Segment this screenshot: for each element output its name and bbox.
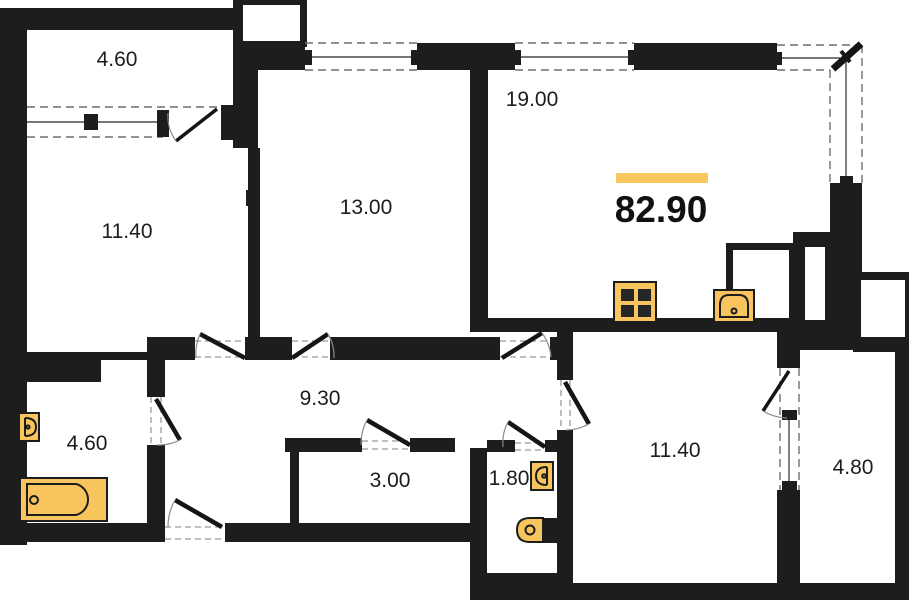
door-bathroom [151, 397, 180, 445]
fixtures [19, 282, 754, 542]
room-area-balcony-upper: 4.60 [97, 48, 138, 71]
door-entry [165, 500, 225, 539]
room-area-wc: 1.80 [489, 467, 530, 490]
room-area-balcony-lower: 4.80 [833, 456, 874, 479]
stove-icon [614, 282, 656, 322]
door-balcony-upper [168, 109, 217, 141]
door-kitchen-opening [500, 333, 551, 358]
kitchen-sink-icon [714, 290, 754, 322]
total-area-label: 82.90 [615, 189, 708, 230]
walls [0, 0, 909, 600]
window-bedroom-middle [301, 43, 422, 70]
door-bedroom-upper-left [195, 334, 245, 358]
toilet-icon [517, 518, 543, 542]
washbasin-bathroom-icon [19, 413, 39, 441]
room-area-bedroom-upper-left: 11.40 [102, 220, 153, 243]
floor-plan: 82.90 4.60 11.40 13.00 19.00 9.30 4.60 3… [0, 0, 909, 600]
room-area-hallway: 9.30 [300, 387, 341, 410]
room-area-storage: 3.00 [370, 469, 411, 492]
room-area-bedroom-lower-right: 11.40 [650, 439, 701, 462]
washbasin-wc-icon [531, 462, 553, 490]
window-kitchen [510, 43, 639, 70]
window-corner [773, 44, 862, 185]
door-bedroom-lower-right [561, 380, 589, 430]
window-balcony-lower [780, 368, 799, 491]
room-area-kitchen-living: 19.00 [506, 88, 559, 111]
door-bedroom-middle [292, 334, 334, 358]
bathtub-icon [20, 478, 107, 521]
room-area-bedroom-middle: 13.00 [340, 196, 393, 219]
door-storage [361, 420, 410, 449]
floor-plan-canvas: 82.90 4.60 11.40 13.00 19.00 9.30 4.60 3… [0, 0, 909, 600]
room-area-bathroom: 4.60 [67, 432, 108, 455]
total-area-highlight-bar [616, 173, 708, 183]
